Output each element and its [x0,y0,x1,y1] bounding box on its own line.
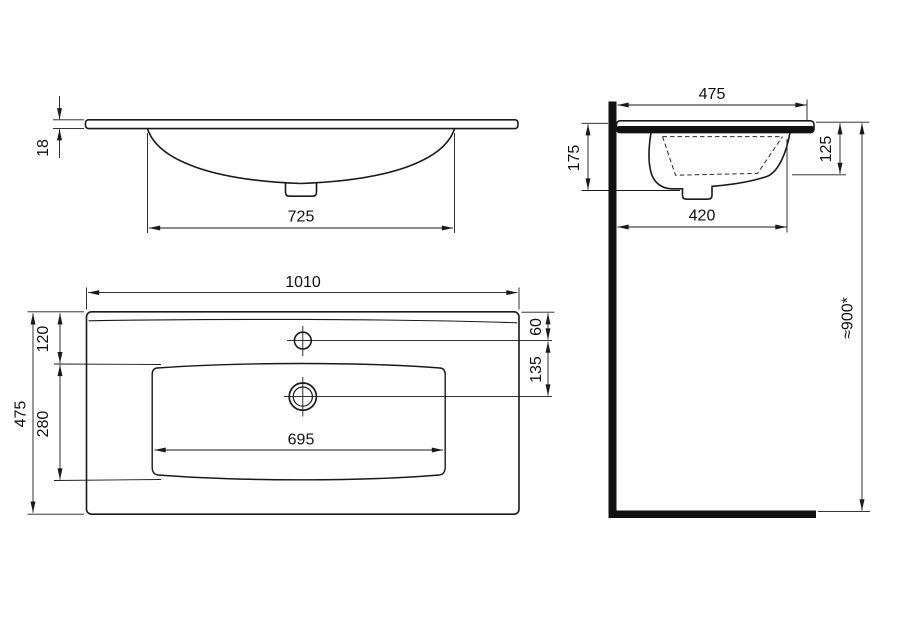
dim-overall-width: 1010 [87,274,520,310]
dim-120-label: 120 [35,326,52,353]
side-slab-section [617,126,815,133]
drawing-svg: 18 725 475 175 [0,0,900,636]
dim-basin-outer-extent: 420 [618,139,788,233]
dim-1010-label: 1010 [285,274,321,291]
side-basin-profile [649,133,790,200]
dim-475-plan-label: 475 [13,401,30,428]
side-basin-hidden-profile [663,137,783,176]
front-basin-outline [148,129,455,184]
dim-725-label: 725 [288,209,315,226]
dim-installation-height: ≈900* [818,123,870,511]
dim-125-label: 125 [818,136,835,163]
floor-section [609,511,817,519]
side-view: 475 175 125 420 ≈900* [566,86,870,518]
dim-175-label: 175 [566,145,583,172]
front-slab-outline [86,120,519,129]
dim-faucet-position: 60 135 [522,312,555,395]
technical-drawing-washbasin: 18 725 475 175 [0,0,900,636]
front-drain-outlet [286,183,317,196]
dim-280-label: 280 [35,411,52,438]
dim-side-depth: 475 [618,86,808,120]
dim-420-label: 420 [689,208,716,225]
dim-475-side-label: 475 [699,86,726,103]
front-view: 18 725 [35,96,518,233]
dim-slab-thickness: 18 [35,96,84,158]
dim-135-label: 135 [528,356,545,383]
dim-60-label: 60 [528,318,545,336]
wall-section [609,102,617,519]
extension-line [54,364,161,365]
dim-900-label: ≈900* [840,297,857,339]
dim-18-label: 18 [35,139,52,157]
plan-view: 1010 475 120 280 60 135 695 [13,274,555,514]
dim-695-label: 695 [288,432,315,449]
